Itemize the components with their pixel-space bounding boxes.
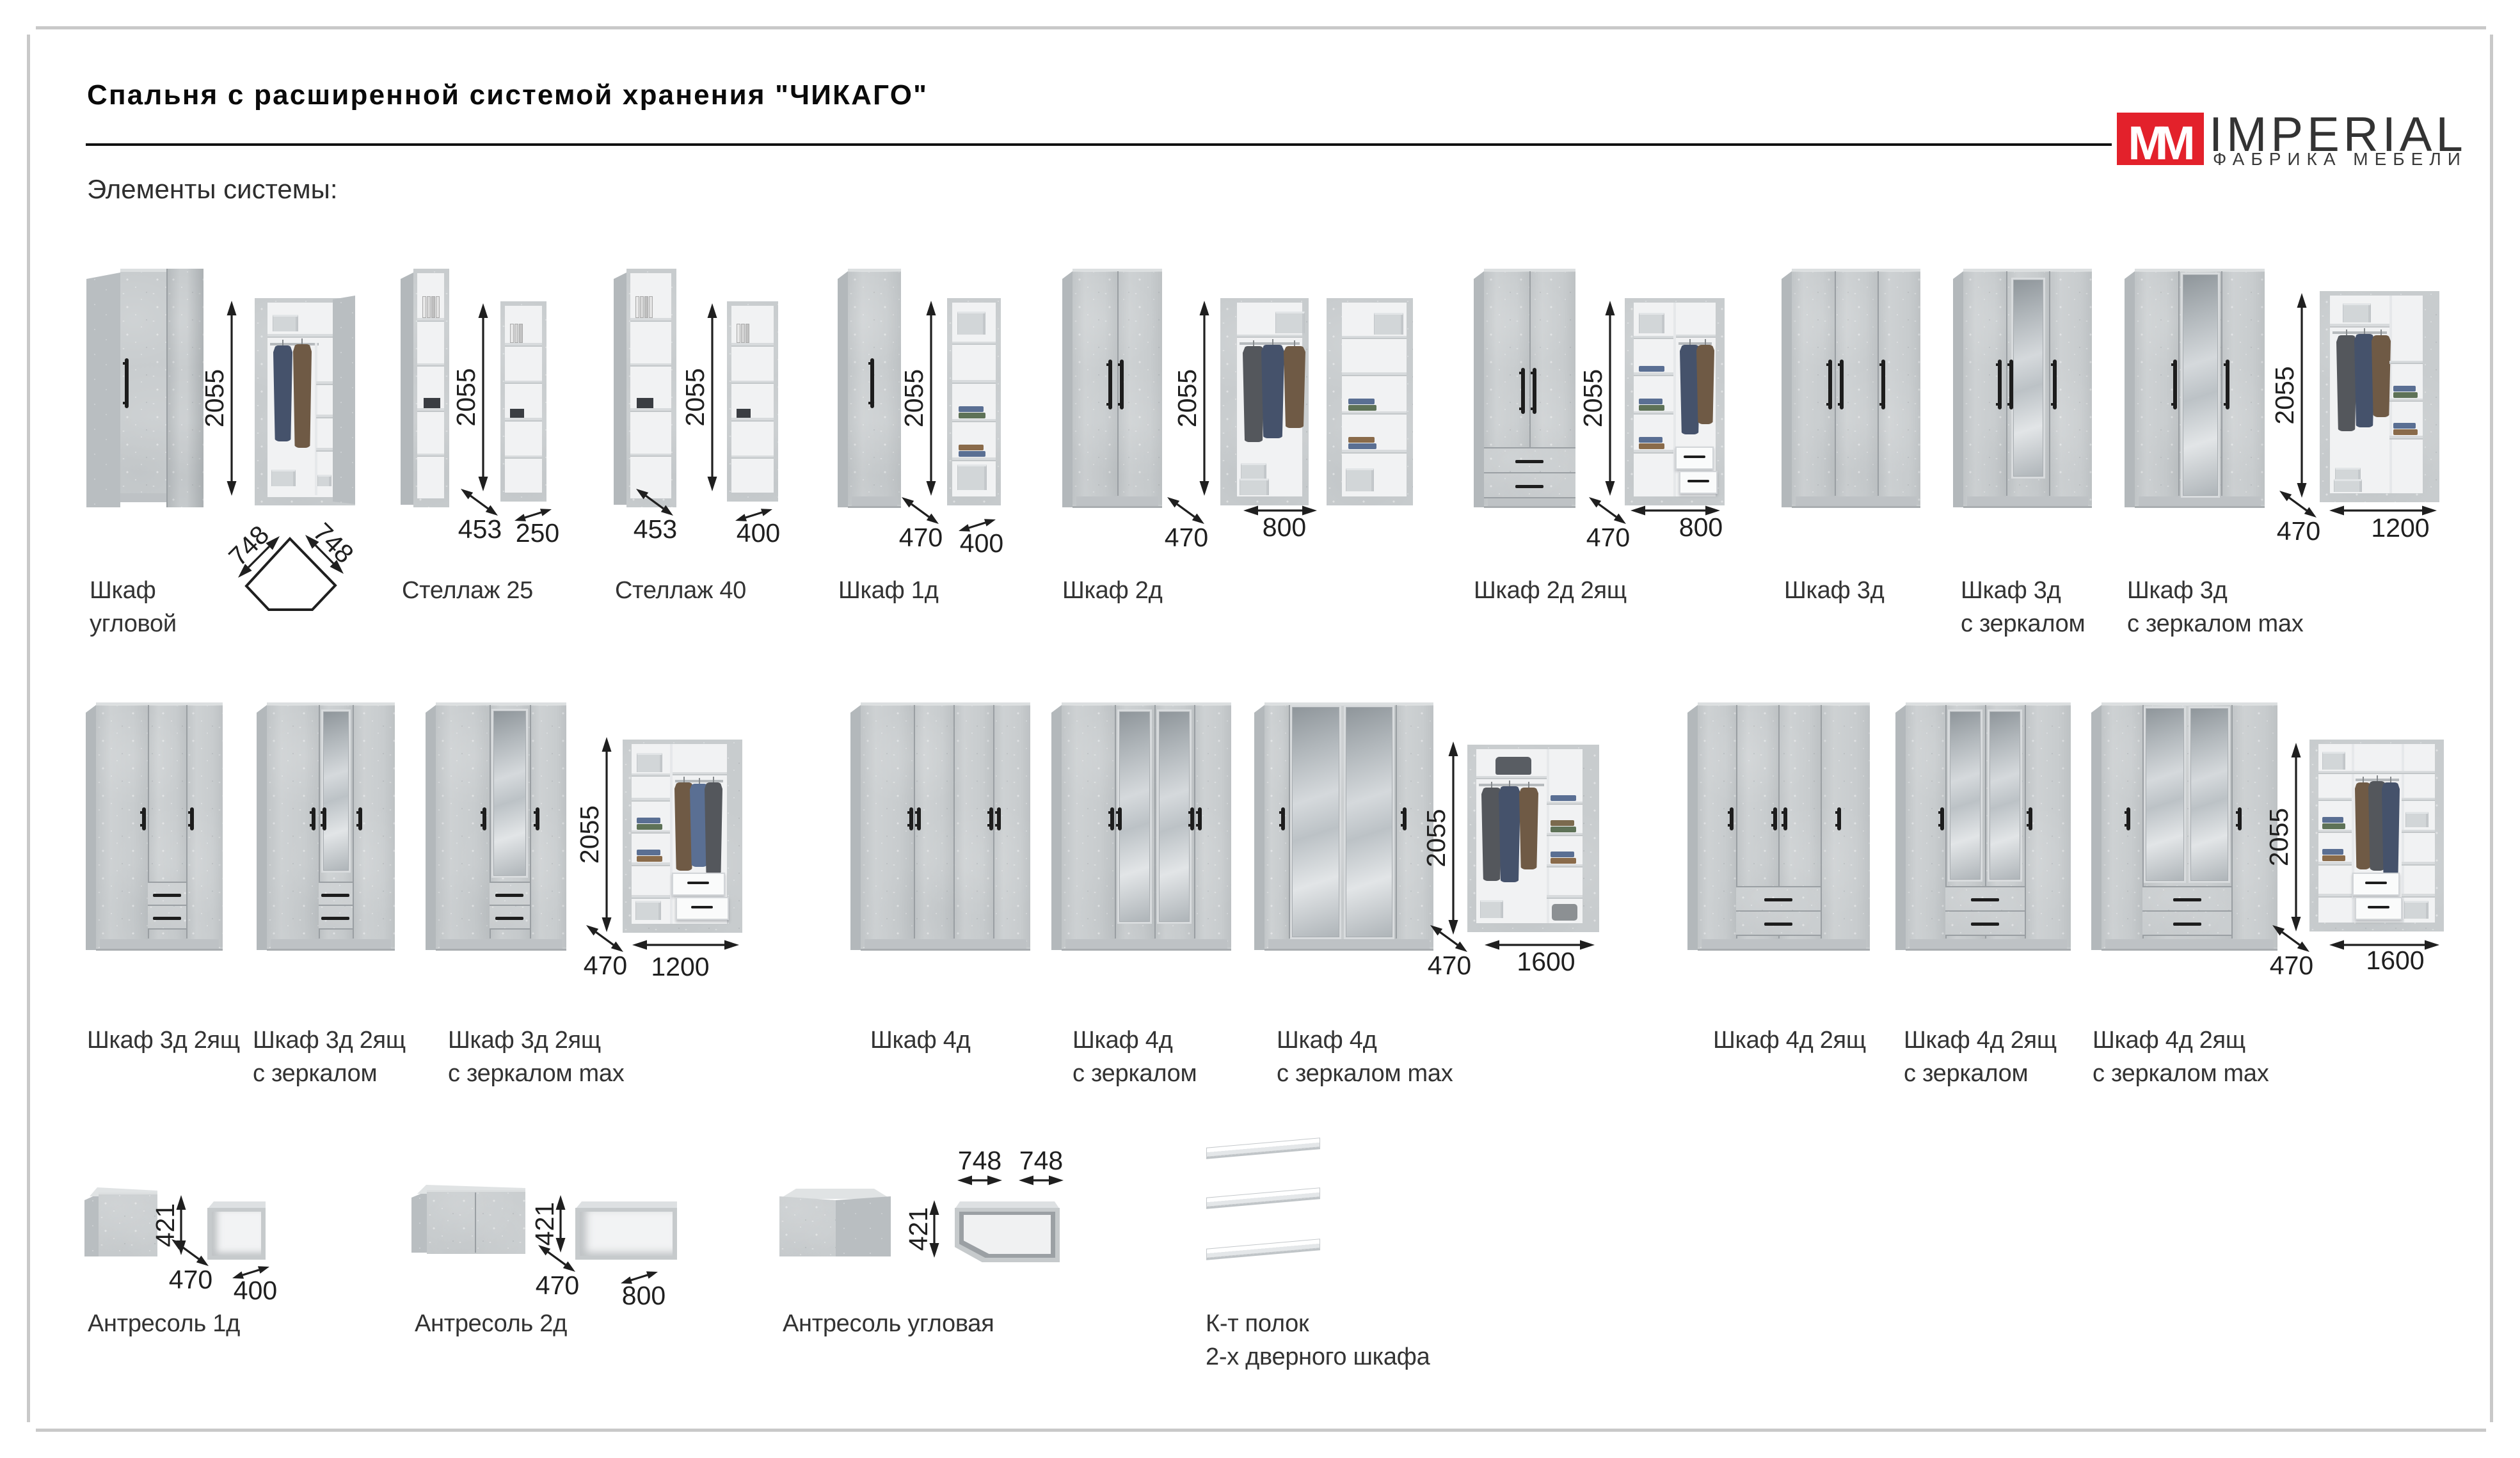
svg-text:800: 800 <box>622 1281 666 1310</box>
svg-text:250: 250 <box>516 518 559 548</box>
svg-text:470: 470 <box>2277 516 2320 546</box>
svg-text:453: 453 <box>634 514 677 544</box>
svg-text:1200: 1200 <box>651 952 709 981</box>
svg-text:748: 748 <box>308 517 360 569</box>
svg-text:2055: 2055 <box>680 368 710 426</box>
svg-text:2055: 2055 <box>200 369 229 427</box>
svg-text:748: 748 <box>223 519 275 571</box>
svg-text:421: 421 <box>904 1207 933 1251</box>
svg-text:400: 400 <box>234 1276 277 1305</box>
svg-text:400: 400 <box>960 528 1003 558</box>
svg-text:470: 470 <box>2270 951 2313 980</box>
svg-text:1600: 1600 <box>2366 946 2424 975</box>
svg-text:800: 800 <box>1263 512 1306 542</box>
svg-text:470: 470 <box>169 1265 212 1294</box>
svg-text:1200: 1200 <box>2371 513 2429 543</box>
svg-text:453: 453 <box>458 514 502 544</box>
svg-text:2055: 2055 <box>2270 366 2299 424</box>
svg-text:470: 470 <box>536 1271 579 1300</box>
svg-text:2055: 2055 <box>1172 369 1202 427</box>
svg-text:1600: 1600 <box>1517 947 1575 976</box>
svg-text:421: 421 <box>530 1202 559 1246</box>
svg-text:748: 748 <box>1019 1146 1063 1175</box>
svg-text:470: 470 <box>899 523 943 552</box>
svg-text:2055: 2055 <box>899 369 929 427</box>
svg-text:2055: 2055 <box>451 368 481 426</box>
svg-text:2055: 2055 <box>1578 369 1607 427</box>
svg-text:470: 470 <box>1428 951 1471 980</box>
svg-text:470: 470 <box>1586 523 1630 552</box>
svg-text:800: 800 <box>1679 512 1723 542</box>
svg-text:748: 748 <box>958 1146 1001 1175</box>
svg-text:470: 470 <box>584 951 627 980</box>
svg-text:2055: 2055 <box>575 805 604 864</box>
svg-text:470: 470 <box>1165 523 1208 552</box>
svg-text:400: 400 <box>737 518 780 548</box>
